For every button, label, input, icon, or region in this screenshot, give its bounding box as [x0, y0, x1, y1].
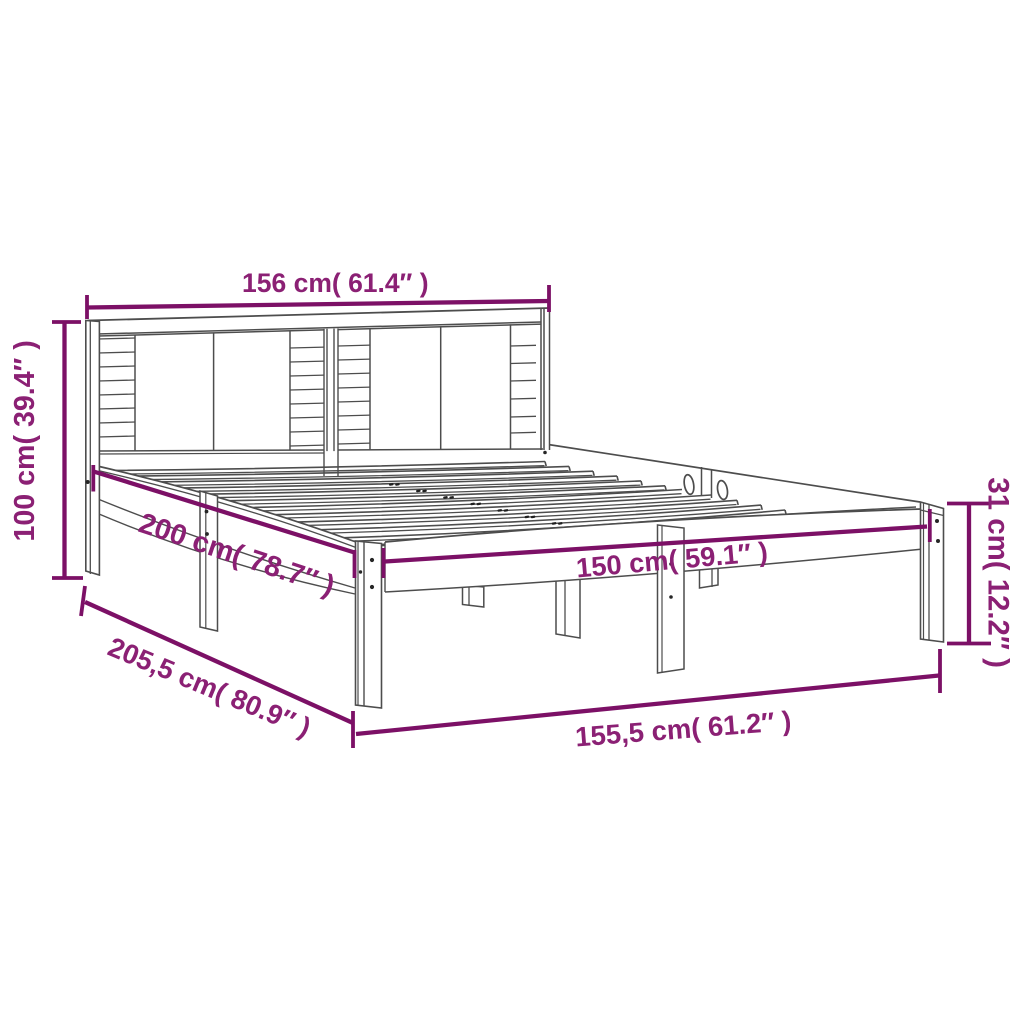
svg-text:31 cm( 12.2″ ): 31 cm( 12.2″ ): [982, 477, 1015, 668]
svg-text:100 cm( 39.4″ ): 100 cm( 39.4″ ): [9, 340, 41, 541]
svg-text:156 cm( 61.4″ ): 156 cm( 61.4″ ): [242, 268, 429, 298]
